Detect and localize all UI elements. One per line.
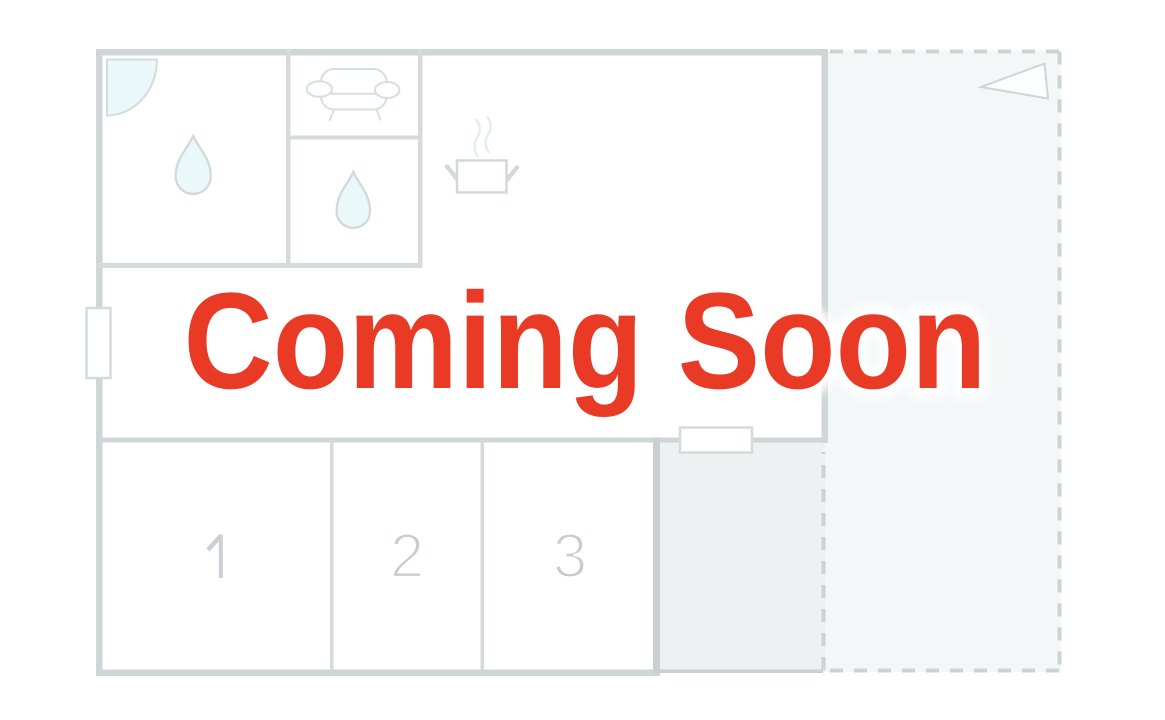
svg-text:3: 3 [553, 522, 587, 591]
svg-text:2: 2 [390, 522, 424, 591]
svg-text:Coming Soon: Coming Soon [184, 265, 987, 418]
